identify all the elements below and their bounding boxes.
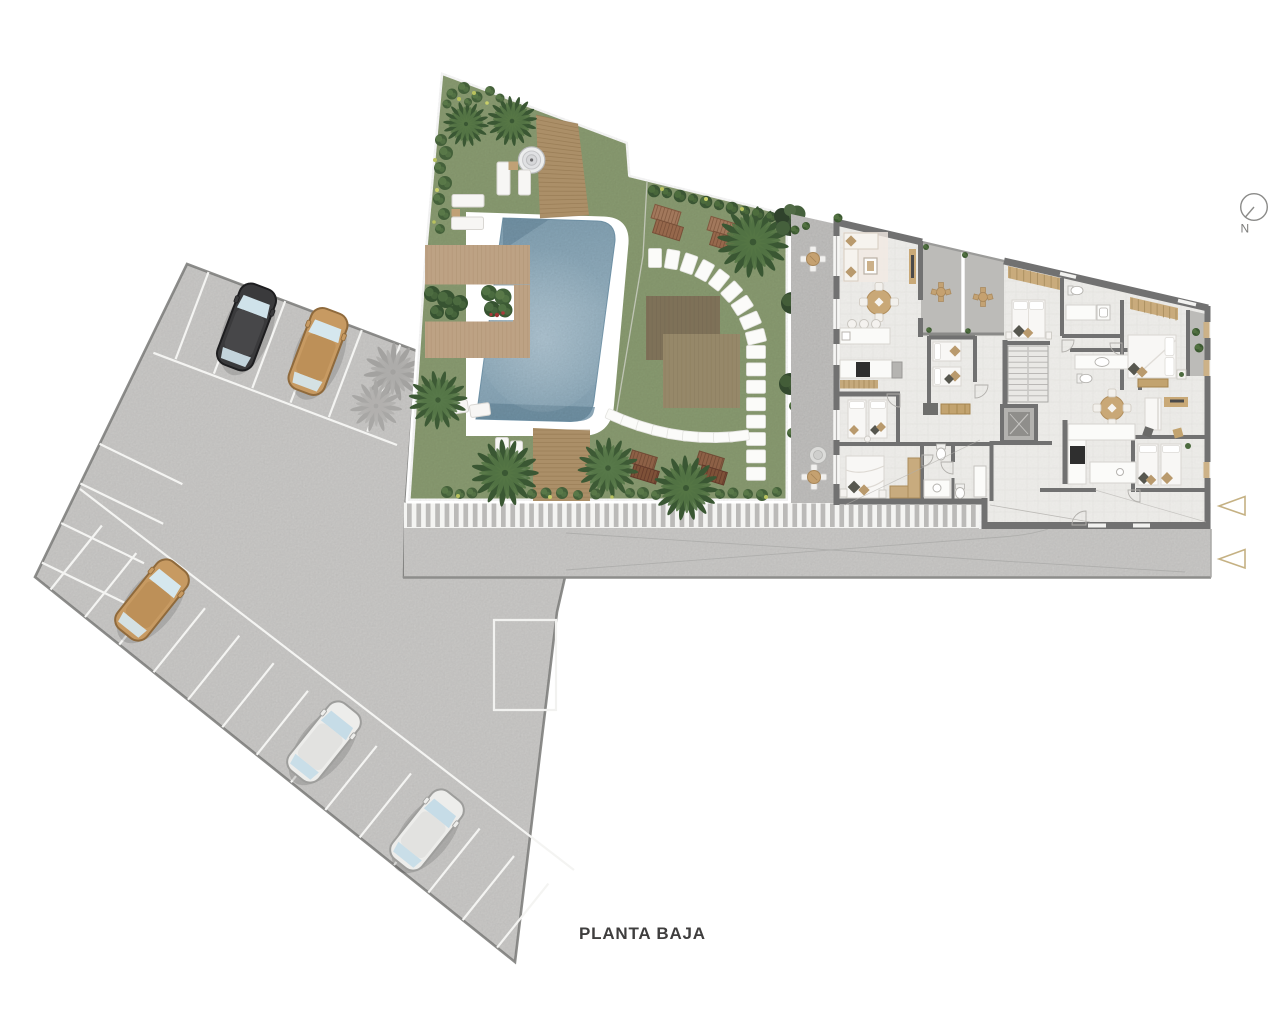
svg-text:PLANTA BAJA: PLANTA BAJA <box>579 924 706 943</box>
svg-text:N: N <box>1241 222 1250 236</box>
